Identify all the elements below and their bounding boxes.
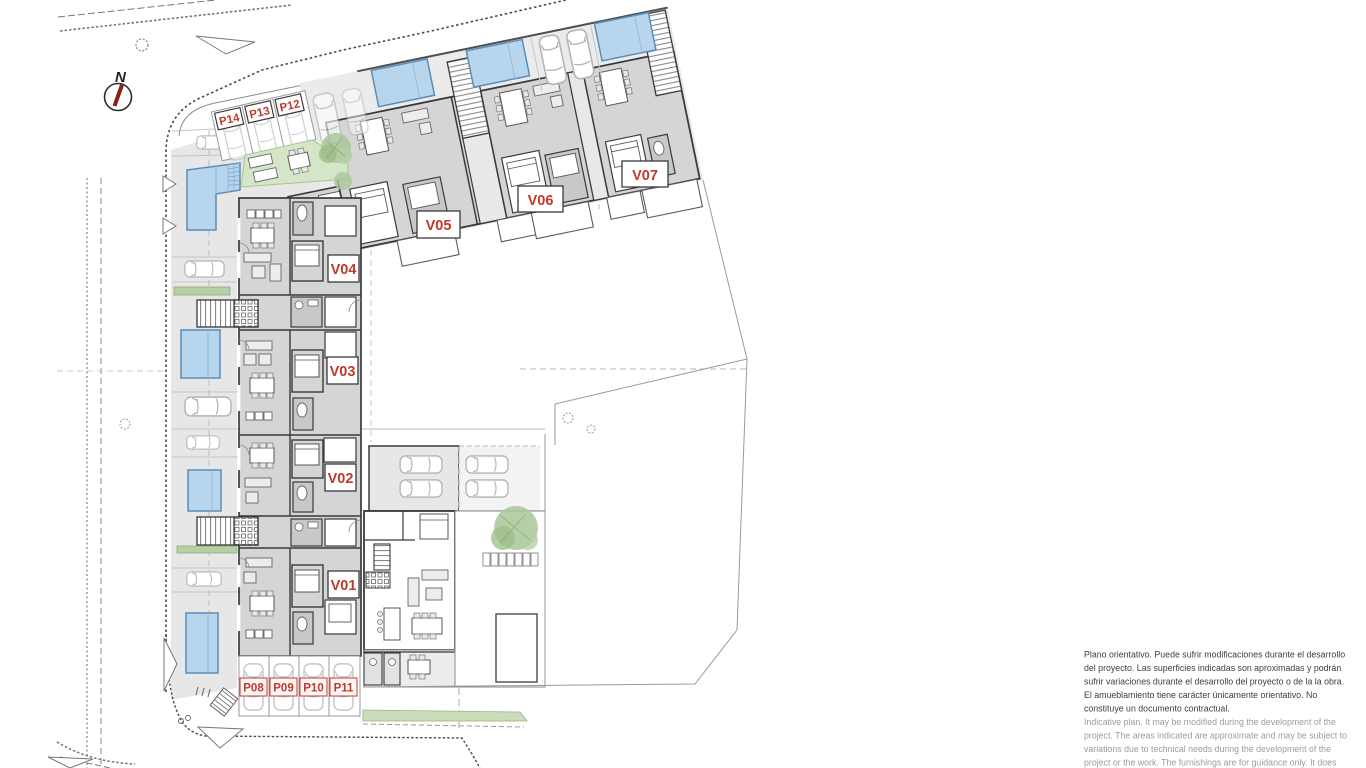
- svg-text:P10: P10: [303, 683, 323, 695]
- svg-text:V07: V07: [632, 168, 658, 184]
- svg-text:del proyecto. Las superficies: del proyecto. Las superficies indicadas …: [1084, 663, 1341, 673]
- svg-text:V06: V06: [528, 193, 554, 209]
- svg-text:V03: V03: [330, 364, 356, 380]
- svg-text:sufrir variaciones durante el: sufrir variaciones durante el desarrollo…: [1084, 677, 1344, 687]
- svg-text:Indicative plan. It may be mod: Indicative plan. It may be modified duri…: [1084, 717, 1336, 727]
- svg-text:V04: V04: [331, 262, 357, 278]
- svg-text:variations due to technical ne: variations due to technical needs during…: [1084, 744, 1331, 754]
- svg-text:constituye un documento contra: constituye un documento contractual.: [1084, 704, 1230, 714]
- svg-text:project. The areas indicated a: project. The areas indicated are approxi…: [1084, 731, 1347, 741]
- svg-text:El amueblamiento tiene carácte: El amueblamiento tiene carácter únicamen…: [1084, 690, 1317, 700]
- svg-text:V02: V02: [328, 471, 354, 487]
- svg-text:P11: P11: [334, 683, 354, 695]
- svg-text:project or the work. The furni: project or the work. The furnishings are…: [1084, 758, 1337, 768]
- svg-text:P09: P09: [273, 683, 293, 695]
- svg-text:V01: V01: [331, 578, 357, 594]
- svg-text:N: N: [115, 69, 127, 86]
- svg-text:Plano orientativo. Puede sufri: Plano orientativo. Puede sufrir modifica…: [1084, 650, 1345, 660]
- svg-text:V05: V05: [426, 218, 452, 234]
- svg-text:P08: P08: [243, 683, 264, 695]
